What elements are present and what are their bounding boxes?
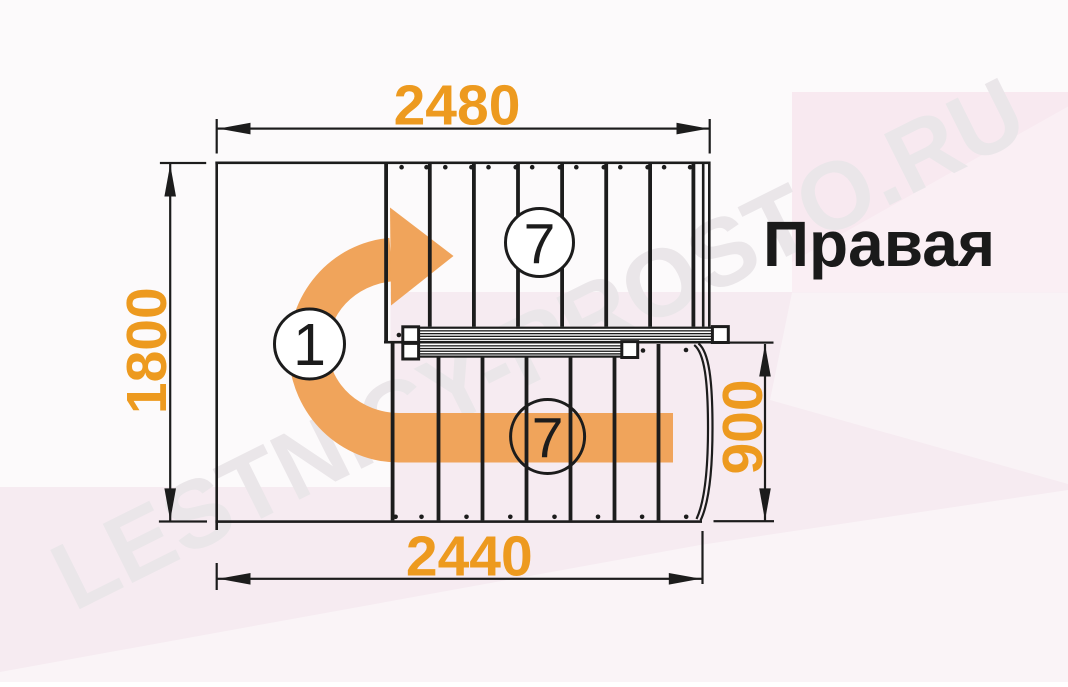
- svg-text:1800: 1800: [115, 287, 179, 414]
- svg-text:2440: 2440: [406, 524, 533, 588]
- svg-text:7: 7: [524, 213, 556, 277]
- svg-text:1: 1: [293, 312, 326, 378]
- svg-text:7: 7: [532, 407, 564, 471]
- svg-text:2480: 2480: [394, 74, 521, 138]
- svg-text:900: 900: [711, 379, 775, 474]
- svg-text:Правая: Правая: [763, 208, 995, 280]
